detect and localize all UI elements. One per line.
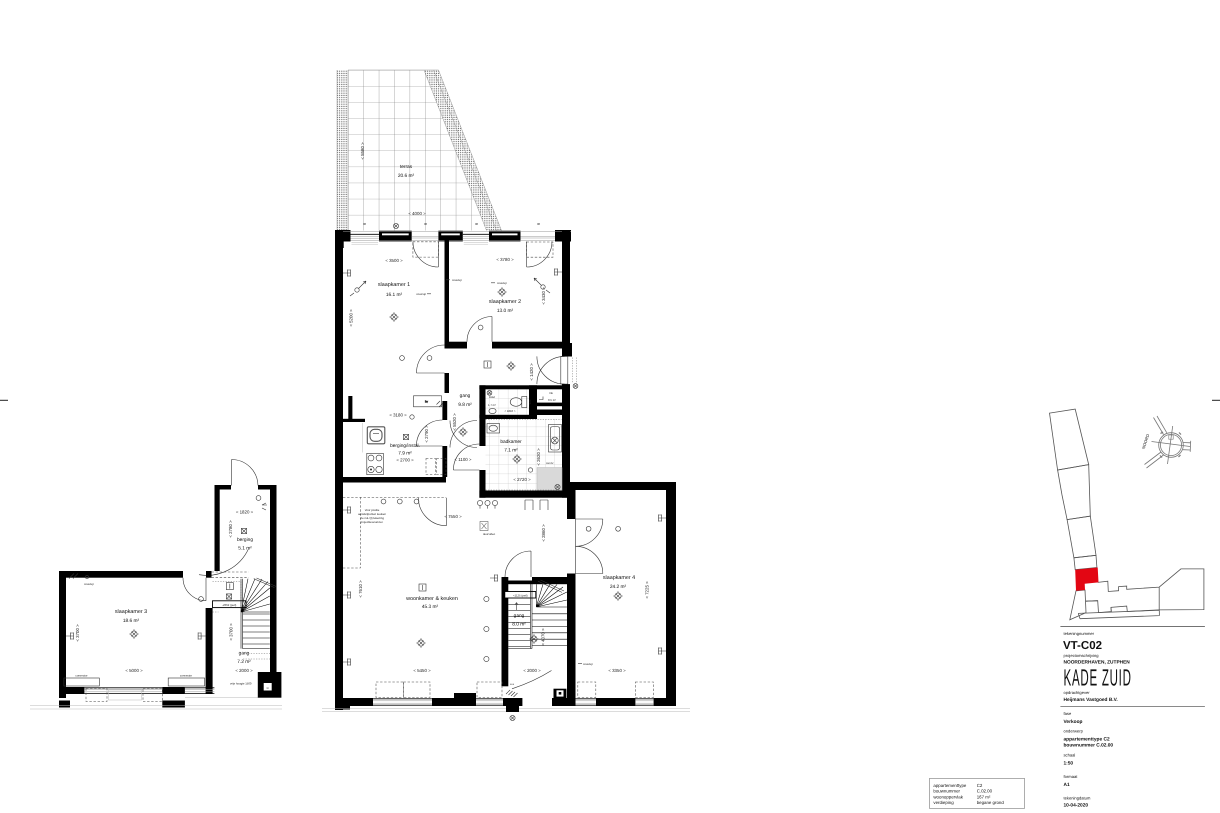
svg-text:convector: convector [75,674,87,678]
svg-text:projectleverancier.: projectleverancier. [361,520,384,524]
svg-text:90: 90 [363,222,367,226]
svg-text:deurvideo: deurvideo [483,532,496,536]
svg-text:7.1 m²: 7.1 m² [504,448,518,454]
svg-text:< 3350 >: < 3350 > [608,668,626,673]
svg-text:mk: mk [549,391,553,395]
svg-text:< 3780 >: < 3780 > [496,257,514,262]
svg-text:0.5 m²: 0.5 m² [548,398,556,402]
svg-text:90: 90 [424,222,428,226]
svg-text:7.2 m²: 7.2 m² [237,659,251,665]
svg-text:< 1810 >: < 1810 > [504,409,515,413]
svg-text:< 1100 >: < 1100 > [454,457,471,462]
svg-text:vrije hoogte 1500: vrije hoogte 1500 [230,682,252,686]
svg-text:badkamer: badkamer [500,439,522,445]
svg-text:90: 90 [537,222,541,226]
svg-text:slaapkamer 2: slaapkamer 2 [489,299,521,305]
svg-text:< 5580 >: < 5580 > [360,142,365,160]
svg-text:< 5200 >: < 5200 > [349,309,354,327]
svg-text:bouwnummer C.02.00: bouwnummer C.02.00 [1064,743,1114,749]
svg-text:woonkamer & keuken: woonkamer & keuken [405,596,458,602]
svg-text:< 5450 >: < 5450 > [413,668,431,673]
svg-text:tekeningdatum: tekeningdatum [1064,796,1091,801]
svg-text:< 3700 >: < 3700 > [75,624,80,642]
svg-text:1.7 m²: 1.7 m² [488,403,496,407]
svg-text:projectomschrijving: projectomschrijving [1064,653,1100,658]
svg-text:< 3500 >: < 3500 > [385,258,403,263]
svg-text:slaapkamer 4: slaapkamer 4 [603,575,635,581]
svg-text:terras: terras [400,164,413,170]
svg-text:< 5520 >: < 5520 > [452,413,457,431]
svg-text:167 m²: 167 m² [977,794,991,799]
svg-text:90: 90 [475,222,479,226]
svg-text:coax/up: coax/up [497,281,507,285]
svg-text:< 2790 >: < 2790 > [424,425,429,443]
svg-text:C2: C2 [977,783,983,788]
svg-text:< 2000 >: < 2000 > [523,668,541,673]
svg-text:bouwnummer: bouwnummer [933,789,960,794]
svg-text:24.2 m²: 24.2 m² [610,584,627,590]
svg-text:9.8 m²: 9.8 m² [458,402,472,408]
svg-text:< 4000 >: < 4000 > [408,211,426,216]
svg-text:slaapkamer 1: slaapkamer 1 [378,282,410,288]
svg-text:< 1420 >: < 1420 > [529,363,534,381]
svg-text:< 3180 >: < 3180 > [389,413,407,418]
svg-text:opdrachtgever: opdrachtgever [1064,690,1091,695]
svg-text:920: 920 [528,399,532,404]
svg-text:D: D [267,686,269,690]
svg-text:appartementtype C2: appartementtype C2 [1064,737,1110,743]
svg-text:Heijmans Vastgoed B.V.: Heijmans Vastgoed B.V. [1064,697,1118,703]
svg-text:7.9 m²: 7.9 m² [398,451,412,457]
svg-text:10-04-2020: 10-04-2020 [1064,803,1089,809]
svg-text:18.6 m²: 18.6 m² [123,618,140,624]
svg-text:coax/up: coax/up [416,292,426,296]
svg-text:coax/up: coax/up [583,662,593,666]
svg-text:20.6 m²: 20.6 m² [398,173,415,179]
svg-text:< 7550 >: < 7550 > [444,514,462,519]
svg-text:< 3430 >: < 3430 > [541,287,546,305]
svg-text:verdieping: verdieping [933,800,954,805]
svg-text:1:50: 1:50 [1064,761,1074,767]
svg-text:45.3 m²: 45.3 m² [422,604,439,610]
svg-text:-2062 (peil): -2062 (peil) [222,603,236,607]
svg-text:16.1 m²: 16.1 m² [386,292,403,298]
svg-text:berging/instal.: berging/instal. [390,443,420,449]
svg-text:a a: a a [510,682,514,686]
svg-text:< 2780 >: < 2780 > [228,520,233,538]
svg-text:< 2720 >: < 2720 > [513,477,531,482]
svg-text:coax/up: coax/up [452,278,462,282]
svg-text:< 2860 >: < 2860 > [541,524,546,542]
svg-text:tekeningnummer: tekeningnummer [1064,631,1095,636]
svg-text:< 4070 >: < 4070 > [541,628,546,646]
svg-text:toilet: toilet [489,395,495,399]
svg-text:< 7610 >: < 7610 > [358,580,363,598]
svg-text:A1: A1 [1064,782,1070,788]
svg-text:< 1820 >: < 1820 > [236,510,254,515]
svg-text:<1125 (peil): <1125 (peil) [513,594,528,598]
svg-text:< 7225 >: < 7225 > [645,581,650,599]
svg-text:5.1 m²: 5.1 m² [238,546,252,552]
svg-text:coax/up: coax/up [84,582,94,586]
svg-text:< 3700 >: < 3700 > [229,623,234,641]
svg-text:13.0 m²: 13.0 m² [497,308,514,314]
svg-text:< 2000 >: < 2000 > [235,668,253,673]
svg-text:gang: gang [460,394,471,399]
svg-text:< 5000 >: < 5000 > [125,668,143,673]
svg-text:C.02.00: C.02.00 [977,789,993,794]
svg-text:onderwerp: onderwerp [1064,729,1084,734]
svg-text:woonoppervlak: woonoppervlak [933,794,963,799]
svg-text:cai+tv: cai+tv [546,461,554,465]
svg-text:gang: gang [239,652,250,657]
svg-text:appartementtype: appartementtype [933,783,967,788]
svg-text:< 2700 >: < 2700 > [396,458,414,463]
svg-text:berging: berging [237,537,253,543]
svg-text:fase: fase [1064,711,1072,716]
svg-text:slaapkamer 3: slaapkamer 3 [115,609,147,615]
svg-text:schaal: schaal [1064,753,1076,758]
svg-text:KADE ZUID: KADE ZUID [1064,665,1132,691]
svg-text:convector: convector [180,674,192,678]
svg-text:VT-C02: VT-C02 [1063,640,1102,652]
svg-text:begane grond: begane grond [977,800,1005,805]
svg-text:< 2620 >: < 2620 > [536,448,541,466]
svg-text:formaat: formaat [1064,774,1079,779]
svg-text:Verkoop: Verkoop [1064,719,1083,725]
